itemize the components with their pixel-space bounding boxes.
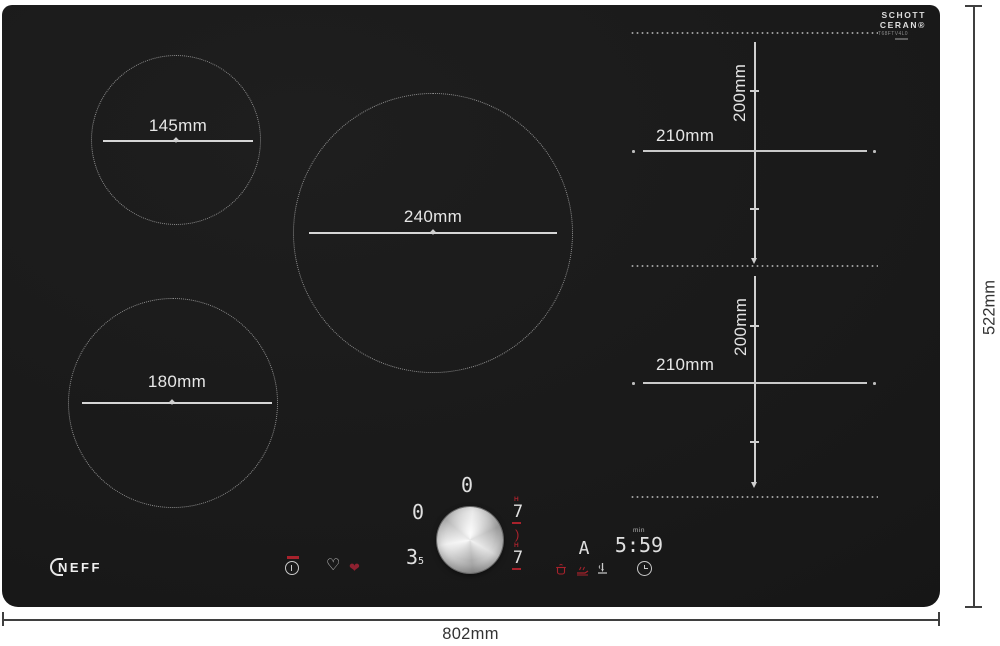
flex-front-width-line	[643, 382, 867, 384]
flex-front-width-dot-left	[632, 382, 635, 385]
glass-brand-mark: SCHOTT CERAN®	[842, 11, 926, 31]
flex-rear-arrow	[751, 258, 757, 264]
zone-left-display: 0	[409, 502, 427, 522]
frying-sensor-icon[interactable]	[575, 563, 590, 577]
flex-rear-tick-1	[750, 90, 759, 92]
zone-rear-display: 0	[458, 475, 476, 495]
zone-240-label: 240mm	[309, 207, 557, 227]
model-fineprint-bar	[895, 38, 908, 40]
model-number: T68FTV4L0	[842, 31, 908, 37]
flex-front-height-line	[754, 276, 756, 484]
flex-front-width-label: 210mm	[656, 355, 714, 375]
bridge-arc-indicator: )	[515, 528, 519, 541]
flex-front-arrow	[751, 482, 757, 488]
flex-front-height-label: 200mm	[730, 277, 752, 377]
flex-rear-width-dot-right	[873, 150, 876, 153]
height-dimension-line	[973, 6, 975, 607]
timer-display: 5:59	[612, 535, 666, 555]
favourite-heart-icon[interactable]: ♡	[326, 558, 340, 574]
flex-zone-top-boundary	[630, 32, 878, 34]
flex-rear-height-label: 200mm	[729, 43, 751, 143]
zone-front-display: 35	[406, 547, 424, 568]
flex-rear-width-dot-left	[632, 150, 635, 153]
width-dimension-cap-right	[938, 612, 940, 626]
flex-rear-width-line	[643, 150, 867, 152]
width-dimension-cap-left	[2, 612, 4, 626]
flex-rear-level-display: 7	[510, 504, 526, 521]
power-level-main: 3	[406, 545, 418, 569]
flex-front-tick-2	[750, 441, 759, 443]
twistpad-knob[interactable]	[437, 507, 503, 573]
power-active-indicator	[287, 556, 299, 559]
flex-zone-middle-boundary	[630, 265, 878, 267]
neff-logo: NEFF	[50, 556, 102, 578]
pot-sensor-icon[interactable]	[554, 562, 568, 576]
induction-hob-surface: 145mm 240mm 180mm 200mm 210mm 200mm 210m…	[2, 5, 940, 607]
zone-180-label: 180mm	[82, 372, 272, 392]
cooking-sensor-icon[interactable]	[595, 561, 610, 576]
power-level-sub: 5	[418, 556, 424, 567]
glass-brand-line2: CERAN®	[842, 21, 926, 31]
timer-clock-icon[interactable]	[637, 561, 652, 576]
width-dimension-label: 802mm	[0, 625, 941, 644]
active-heart-icon[interactable]: ❤	[349, 561, 360, 574]
flex-rear-select-bar	[512, 522, 521, 524]
width-dimension-line	[2, 619, 939, 621]
neff-logo-text: NEFF	[58, 560, 102, 575]
height-dimension-cap-bottom	[965, 606, 982, 608]
flex-front-level-display: 7	[510, 550, 526, 567]
flex-front-select-bar	[512, 568, 521, 570]
auto-display: A	[575, 540, 593, 558]
flex-rear-width-label: 210mm	[656, 126, 714, 146]
height-dimension-cap-top	[965, 5, 982, 7]
zone-145-label: 145mm	[103, 116, 253, 136]
flex-zone-bottom-boundary	[630, 496, 878, 498]
flex-rear-tick-2	[750, 208, 759, 210]
flex-front-width-dot-right	[873, 382, 876, 385]
height-dimension-label: 522mm	[979, 262, 1000, 352]
power-icon[interactable]	[285, 561, 299, 575]
zone-180-diameter-line	[82, 402, 272, 404]
product-dimension-diagram: 145mm 240mm 180mm 200mm 210mm 200mm 210m…	[0, 0, 1000, 646]
